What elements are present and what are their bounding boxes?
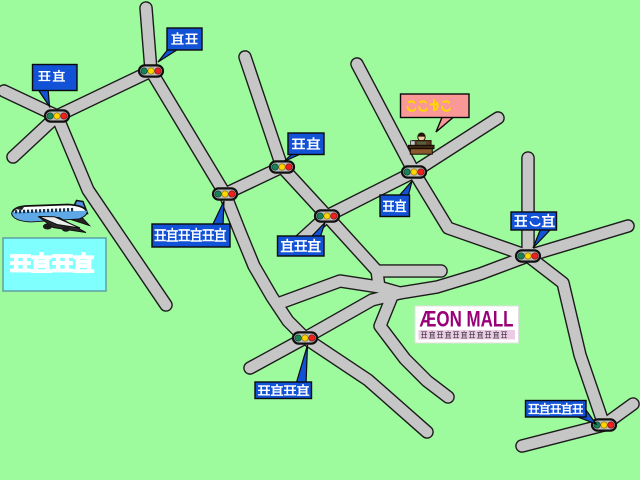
svg-text:ÆON MALL: ÆON MALL [420, 307, 514, 332]
